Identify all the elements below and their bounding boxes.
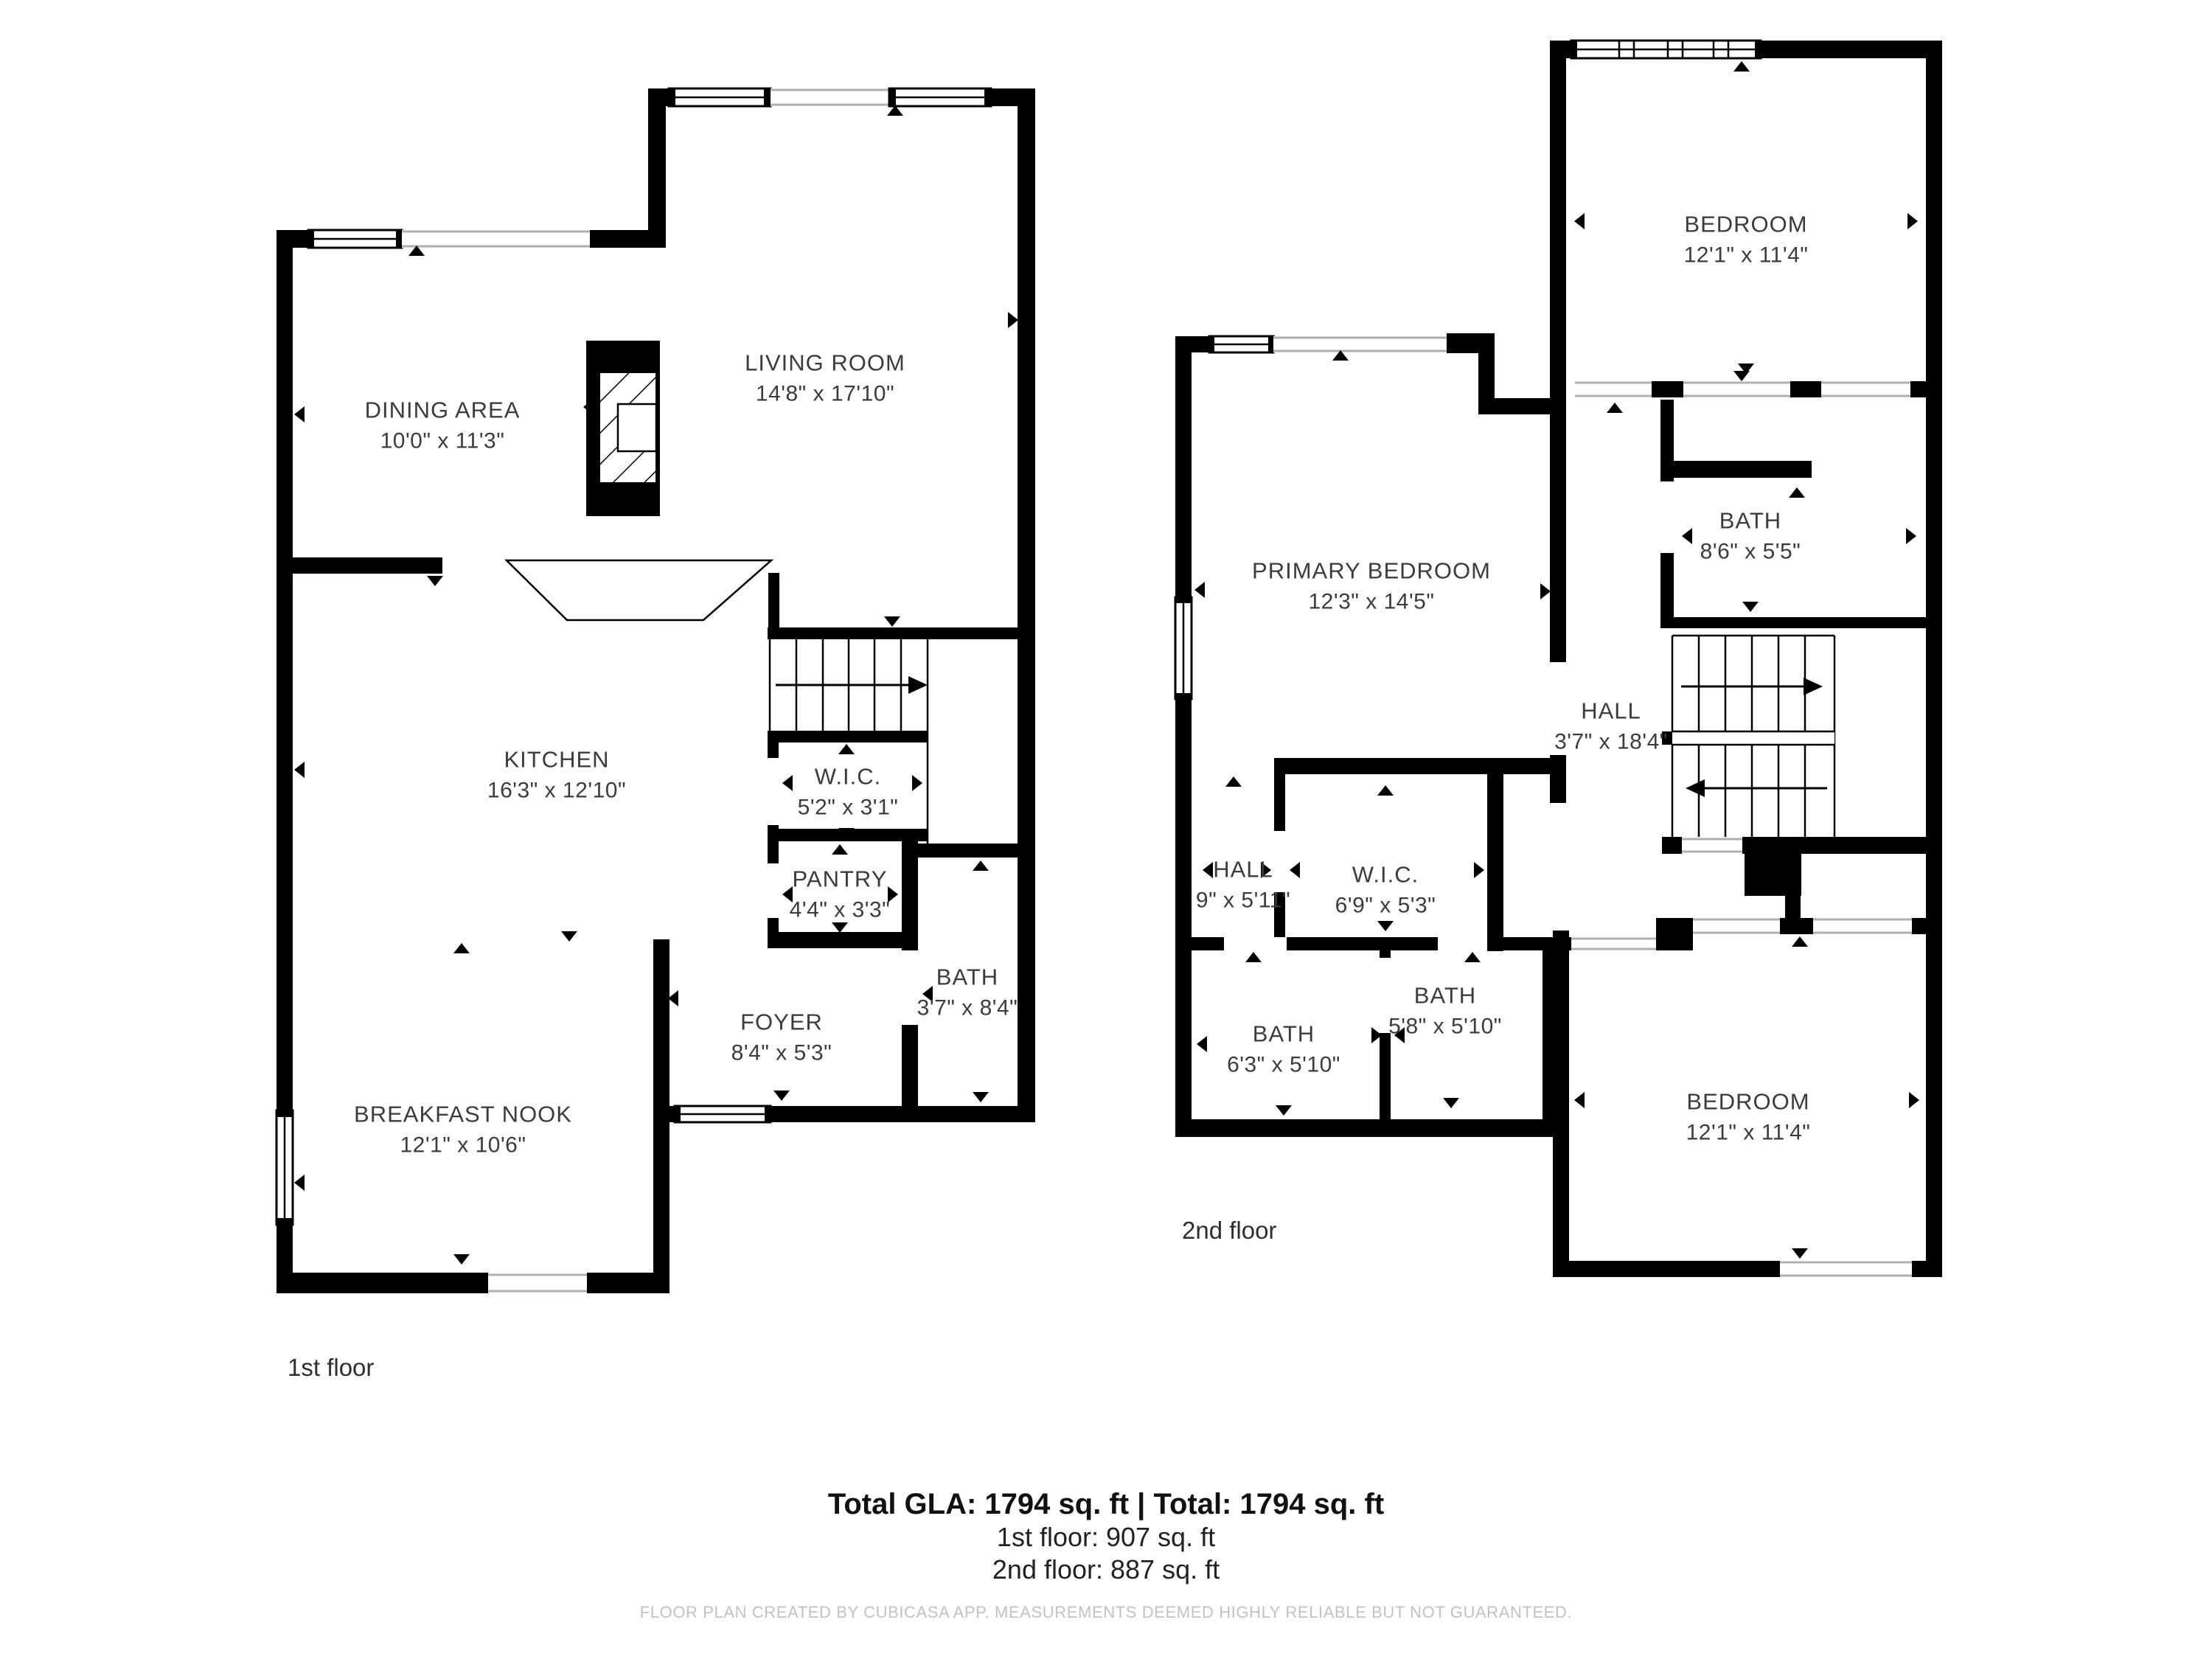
room-label-bath-86: BATH 8'6" x 5'5" — [1700, 504, 1801, 567]
room-dims: 12'1" x 10'6" — [354, 1130, 572, 1161]
window-symbol — [1209, 336, 1273, 352]
room-dims: 3'7" x 18'4" — [1554, 727, 1668, 758]
room-dims: 4'4" x 3'3" — [790, 895, 891, 926]
wall-opening — [1682, 837, 1742, 854]
room-name: HALL — [1196, 853, 1290, 885]
room-dims: 9" x 5'11" — [1196, 886, 1290, 917]
wall-opening — [402, 230, 590, 248]
room-name: W.I.C. — [1335, 858, 1436, 890]
room-name: KITCHEN — [487, 743, 626, 775]
floorplan-page: DINING AREA 10'0" x 11'3" LIVING ROOM 14… — [0, 0, 2212, 1659]
room-name: BATH — [1227, 1018, 1340, 1049]
room-name: BATH — [1388, 979, 1502, 1011]
room-label-bedroom-top: BEDROOM 12'1" x 11'4" — [1684, 208, 1809, 271]
floor1-island-counter — [507, 560, 771, 620]
room-label-bath-63: BATH 6'3" x 5'10" — [1227, 1018, 1340, 1080]
wall-opening — [1273, 336, 1447, 352]
room-name: BEDROOM — [1686, 1085, 1811, 1117]
room-name: BEDROOM — [1684, 208, 1809, 240]
room-label-bath-58: BATH 5'8" x 5'10" — [1388, 979, 1502, 1042]
room-name: BATH — [1700, 504, 1801, 536]
room-label-hall-9: HALL 9" x 5'11" — [1196, 853, 1290, 916]
room-name: DINING AREA — [365, 394, 521, 425]
floor2-area-line: 2nd floor: 887 sq. ft — [992, 1554, 1220, 1585]
room-label-dining: DINING AREA 10'0" x 11'3" — [365, 394, 521, 456]
wall-opening — [771, 88, 889, 106]
room-dims: 8'6" x 5'5" — [1700, 537, 1801, 568]
room-label-hall-37: HALL 3'7" x 18'4" — [1554, 695, 1668, 757]
room-label-foyer: FOYER 8'4" x 5'3" — [731, 1006, 832, 1068]
window-symbol — [1780, 1261, 1912, 1277]
window-symbol — [889, 88, 991, 106]
wall-opening — [1571, 937, 1656, 950]
floor2-walls — [1175, 41, 1942, 1277]
room-label-kitchen: KITCHEN 16'3" x 12'10" — [487, 743, 626, 806]
room-dims: 5'8" x 5'10" — [1388, 1012, 1502, 1043]
room-name: PRIMARY BEDROOM — [1252, 554, 1491, 586]
room-label-wic-2: W.I.C. 6'9" x 5'3" — [1335, 858, 1436, 921]
floor2-stairs — [1662, 636, 1834, 837]
room-name: PANTRY — [790, 863, 891, 894]
room-dims: 12'1" x 11'4" — [1684, 240, 1809, 271]
room-label-wic-1: W.I.C. 5'2" x 3'1" — [798, 760, 899, 823]
window-symbol — [1571, 41, 1761, 58]
room-dims: 5'2" x 3'1" — [798, 793, 899, 824]
room-name: BATH — [917, 961, 1018, 992]
floor2-tag: 2nd floor — [1182, 1217, 1276, 1245]
room-dims: 12'1" x 11'4" — [1686, 1118, 1811, 1149]
room-label-primary: PRIMARY BEDROOM 12'3" x 14'5" — [1252, 554, 1491, 617]
floor1-tag: 1st floor — [288, 1354, 374, 1382]
floor1-fireplace — [586, 341, 660, 516]
wall-opening — [488, 1273, 587, 1293]
room-label-living: LIVING ROOM 14'8" x 17'10" — [745, 347, 905, 409]
floorplan-drawing — [0, 0, 2212, 1659]
total-area-line: Total GLA: 1794 sq. ft | Total: 1794 sq.… — [828, 1488, 1384, 1521]
room-dims: 6'9" x 5'3" — [1335, 891, 1436, 922]
room-dims: 8'4" x 5'3" — [731, 1038, 832, 1069]
room-label-bath-1: BATH 3'7" x 8'4" — [917, 961, 1018, 1023]
room-label-nook: BREAKFAST NOOK 12'1" x 10'6" — [354, 1098, 572, 1161]
room-name: BREAKFAST NOOK — [354, 1098, 572, 1130]
window-symbol — [276, 1110, 293, 1225]
room-name: LIVING ROOM — [745, 347, 905, 378]
disclaimer-text: FLOOR PLAN CREATED BY CUBICASA APP. MEAS… — [640, 1603, 1573, 1622]
stair-direction-arrow — [776, 676, 928, 694]
window-symbol — [1175, 597, 1192, 699]
room-dims: 10'0" x 11'3" — [365, 426, 521, 457]
room-dims: 14'8" x 17'10" — [745, 379, 905, 410]
room-dims: 12'3" x 14'5" — [1252, 587, 1491, 618]
room-label-pantry: PANTRY 4'4" x 3'3" — [790, 863, 891, 925]
entry-door-window — [675, 1106, 771, 1122]
wall-opening — [1575, 381, 1910, 397]
window-symbol — [308, 230, 402, 248]
window-symbol — [669, 88, 771, 106]
room-dims: 3'7" x 8'4" — [917, 993, 1018, 1024]
room-dims: 6'3" x 5'10" — [1227, 1050, 1340, 1081]
room-label-bedroom-bottom: BEDROOM 12'1" x 11'4" — [1686, 1085, 1811, 1148]
room-name: FOYER — [731, 1006, 832, 1037]
floor1-area-line: 1st floor: 907 sq. ft — [997, 1522, 1215, 1553]
room-dims: 16'3" x 12'10" — [487, 776, 626, 807]
room-name: W.I.C. — [798, 760, 899, 792]
room-name: HALL — [1554, 695, 1668, 726]
